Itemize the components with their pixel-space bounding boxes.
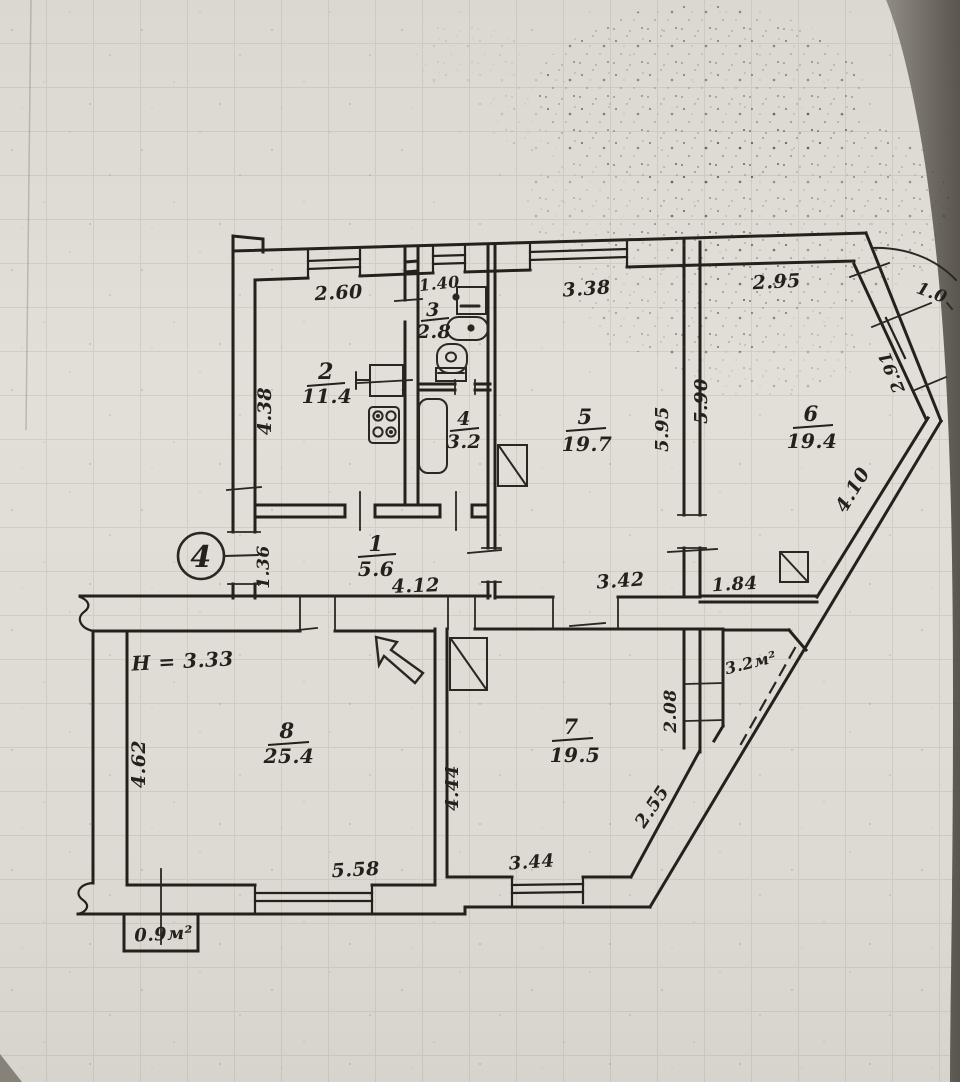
dim-hall-bottom: 4.12 xyxy=(391,574,440,598)
apartment-circle-number: 4 xyxy=(190,540,211,575)
dim-room6-top: 2.95 xyxy=(751,270,801,295)
floor-plan-svg: 1 5.6 2 11.4 3 2.8 4 3.2 5 19.7 6 19.4 7… xyxy=(0,0,960,1082)
room-1-area: 5.6 xyxy=(358,557,394,581)
dim-room7-left: 4.44 xyxy=(442,765,463,811)
dim-wall56-right: 5.90 xyxy=(691,378,712,424)
dim-balcony-side: 2.08 xyxy=(661,689,681,733)
dim-room7-bottom: 3.44 xyxy=(508,850,555,874)
room-5-area: 19.7 xyxy=(562,432,613,456)
dim-room8-bottom: 5.58 xyxy=(331,858,380,882)
dim-hall-left: 1.36 xyxy=(254,545,274,588)
small-balcony-area-label: 0.9м² xyxy=(134,922,194,946)
room-1-number: 1 xyxy=(368,531,383,556)
room-3-number: 3 xyxy=(426,299,440,321)
room-5-number: 5 xyxy=(577,404,592,429)
room-7-number: 7 xyxy=(563,714,578,739)
room-4-number: 4 xyxy=(457,408,471,430)
scanned-floor-plan-page: 1 5.6 2 11.4 3 2.8 4 3.2 5 19.7 6 19.4 7… xyxy=(0,0,960,1082)
room-3-area: 2.8 xyxy=(416,321,452,343)
dim-room8-left: 4.62 xyxy=(128,740,150,788)
room-8-area: 25.4 xyxy=(263,744,315,768)
room-2-area: 11.4 xyxy=(302,384,353,408)
room-4-area: 3.2 xyxy=(447,431,482,453)
room-8-number: 8 xyxy=(278,718,294,743)
dim-room6-bottom: 1.84 xyxy=(711,573,758,596)
room-7-area: 19.5 xyxy=(550,743,601,767)
dim-room2-top: 2.60 xyxy=(313,281,363,306)
dim-room5-bottom: 3.42 xyxy=(596,568,646,593)
dim-wall56-left: 5.95 xyxy=(652,406,673,452)
room-6-area: 19.4 xyxy=(787,429,838,453)
dim-room2-left: 4.38 xyxy=(254,387,276,435)
dim-room5-top: 3.38 xyxy=(562,276,612,301)
room-6-number: 6 xyxy=(803,401,818,426)
room-2-number: 2 xyxy=(317,359,334,385)
